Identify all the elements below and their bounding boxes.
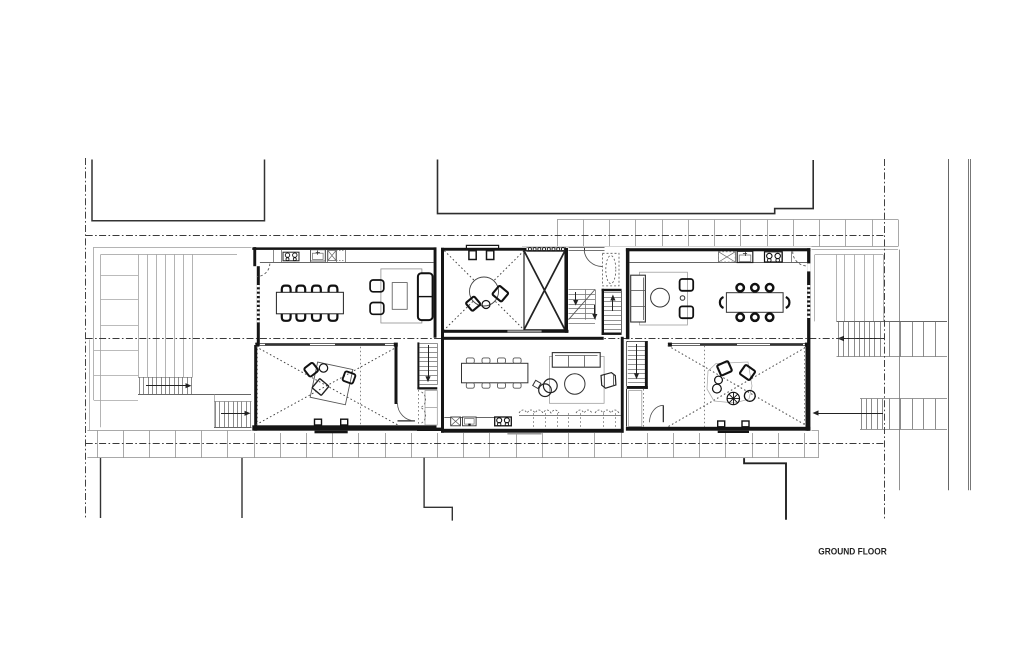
svg-text:GROUND FLOOR: GROUND FLOOR bbox=[818, 547, 887, 557]
